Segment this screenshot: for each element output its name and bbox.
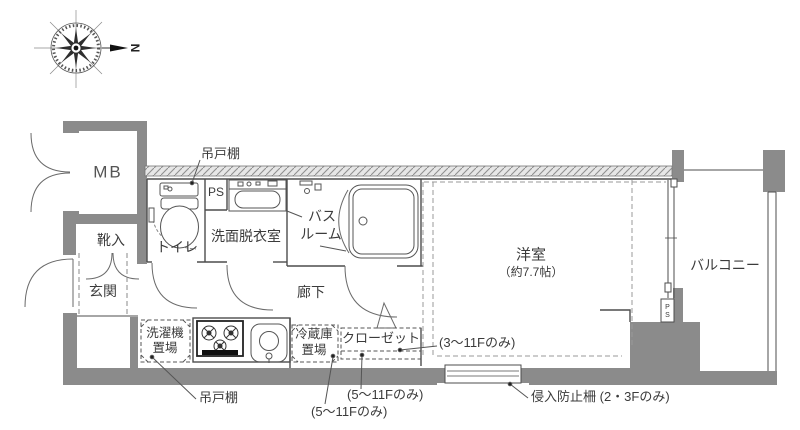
hanging-cupboard-top-label: 吊戸棚 [201, 147, 240, 160]
pipe-space-side-label: P [665, 304, 670, 311]
bathroom-label2: ルーム [300, 227, 342, 241]
intrusion-fence-label: 侵入防止柵 (2・3Fのみ) [531, 390, 670, 403]
floors-5-11-closet-label: (5〜11Fのみ) [347, 388, 423, 401]
fridge-label: 冷蔵庫 [295, 328, 333, 341]
hanging-cupboard-bottom-label: 吊戸棚 [199, 391, 238, 404]
pipe-space-side-label2: S [665, 312, 670, 319]
western-room-size-label: （約7.7帖） [499, 266, 564, 278]
toilet-label: トイレ [156, 240, 198, 254]
fridge-label2: 置場 [301, 344, 326, 357]
floor-plan: N P S MB 靴入 玄関 トイレ PS 洗面脱衣室 バス ルーム 廊下 洋室… [0, 0, 800, 430]
vanity-icon [229, 180, 286, 211]
pipe-space-label: PS [208, 186, 224, 198]
north-arrow-icon [110, 45, 128, 52]
washer-label: 洗濯機 [146, 327, 184, 340]
balcony-railing [768, 192, 776, 371]
closet-label: クローゼット [342, 332, 420, 345]
shoe-box-label: 靴入 [97, 233, 125, 247]
corridor-wall-hatch [145, 166, 672, 176]
western-room-label: 洋室 [516, 248, 546, 263]
fence-window [445, 365, 521, 383]
compass-icon: N [34, 10, 142, 88]
floors-5-11-fridge-label: (5〜11Fのみ) [311, 405, 387, 418]
floor-plan-drawing: N P S [0, 0, 800, 430]
washer-label2: 置場 [152, 342, 177, 355]
mb-label: MB [93, 164, 123, 181]
washroom-label: 洗面脱衣室 [211, 229, 281, 243]
north-label: N [128, 44, 142, 53]
bathroom-label: バス [308, 209, 336, 223]
entrance-label: 玄関 [89, 284, 117, 298]
balcony-label: バルコニー [690, 258, 760, 272]
floors-3-11-label: (3〜11Fのみ) [439, 336, 515, 349]
hallway-label: 廊下 [297, 285, 325, 299]
